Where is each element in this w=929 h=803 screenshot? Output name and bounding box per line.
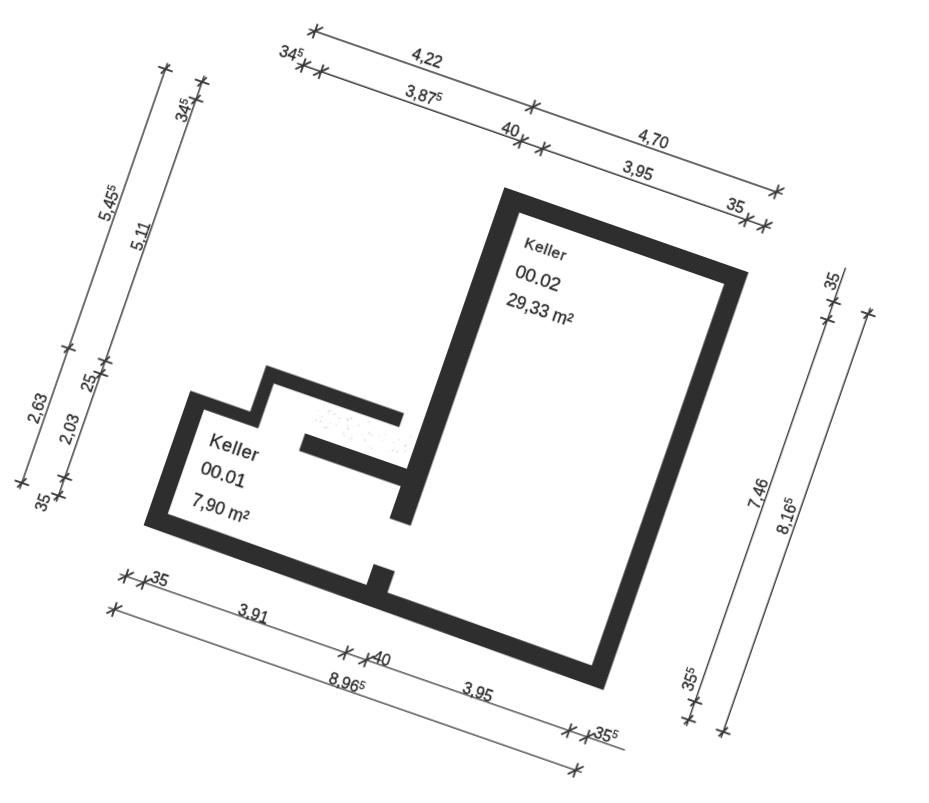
svg-text:40: 40 (500, 118, 522, 140)
